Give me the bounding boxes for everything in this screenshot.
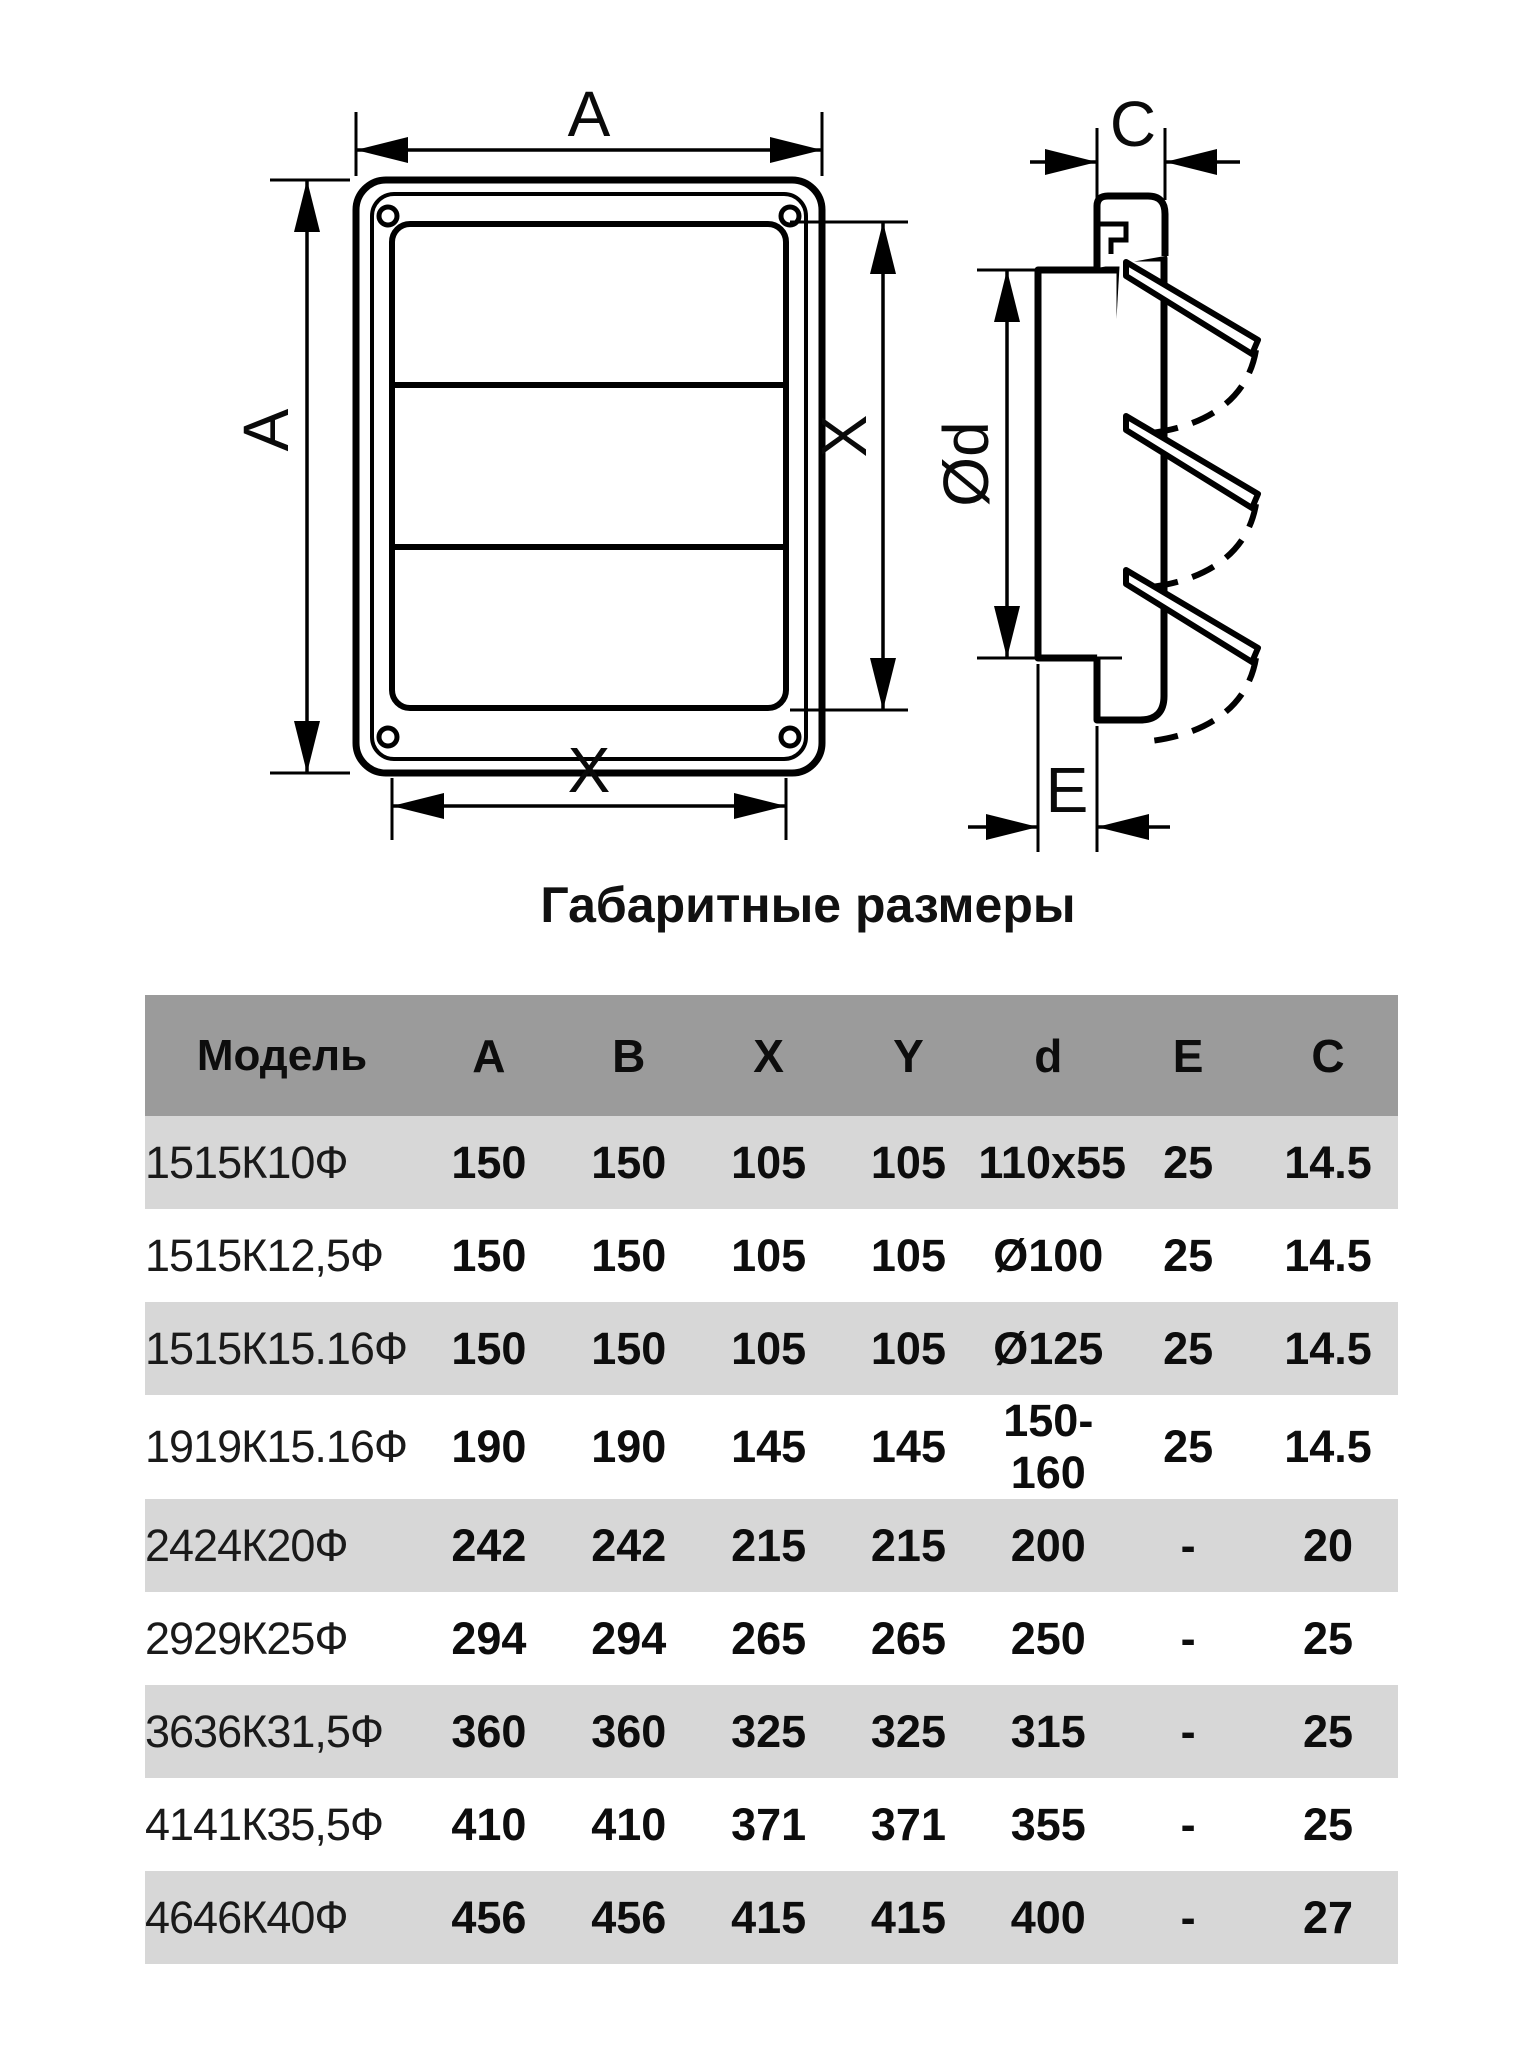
value-cell: 14.5 (1258, 1395, 1398, 1499)
table-row: 2929К25Ф294294265265250-25 (145, 1592, 1398, 1685)
value-cell: 294 (559, 1592, 699, 1685)
column-header: E (1118, 995, 1258, 1116)
value-cell: 145 (839, 1395, 979, 1499)
front-view-drawing: A A X (230, 78, 908, 840)
value-cell: 456 (419, 1871, 559, 1964)
table-row: 1919К15.16Ф190190145145150-1602514.5 (145, 1395, 1398, 1499)
value-cell: 325 (699, 1685, 839, 1778)
page-title: Габаритные размеры (80, 876, 1536, 934)
dim-label-od: Ød (930, 421, 1002, 506)
value-cell: 415 (839, 1871, 979, 1964)
value-cell: 325 (839, 1685, 979, 1778)
screw-hole-icon (379, 728, 397, 746)
spec-table-body: 1515К10Ф150150105105110x552514.51515К12,… (145, 1116, 1398, 1964)
value-cell: 150 (419, 1209, 559, 1302)
model-cell: 2424К20Ф (145, 1499, 419, 1592)
value-cell: 410 (559, 1778, 699, 1871)
dim-label-x-right: X (808, 415, 880, 458)
dim-label-e: E (1046, 754, 1089, 826)
value-cell: 150 (419, 1116, 559, 1209)
value-cell: 105 (839, 1209, 979, 1302)
value-cell: 215 (839, 1499, 979, 1592)
value-cell: 105 (699, 1302, 839, 1395)
value-cell: 355 (978, 1778, 1118, 1871)
value-cell: 145 (699, 1395, 839, 1499)
value-cell: 20 (1258, 1499, 1398, 1592)
model-cell: 3636К31,5Ф (145, 1685, 419, 1778)
value-cell: 415 (699, 1871, 839, 1964)
value-cell: 360 (559, 1685, 699, 1778)
dim-label-x-bottom: X (568, 734, 611, 806)
value-cell: Ø125 (978, 1302, 1118, 1395)
value-cell: 150-160 (978, 1395, 1118, 1499)
flange-hook (1097, 196, 1165, 268)
screw-hole-icon (379, 207, 397, 225)
value-cell: 105 (839, 1116, 979, 1209)
dim-c: C (1030, 88, 1240, 200)
value-cell: 105 (839, 1302, 979, 1395)
column-header: Y (839, 995, 979, 1116)
column-header: C (1258, 995, 1398, 1116)
value-cell: 190 (419, 1395, 559, 1499)
value-cell: - (1118, 1592, 1258, 1685)
table-row: 1515К10Ф150150105105110x552514.5 (145, 1116, 1398, 1209)
column-header: X (699, 995, 839, 1116)
value-cell: 150 (559, 1116, 699, 1209)
value-cell: 25 (1118, 1116, 1258, 1209)
value-cell: - (1118, 1871, 1258, 1964)
value-cell: - (1118, 1685, 1258, 1778)
model-cell: 4646К40Ф (145, 1871, 419, 1964)
table-header-row: МодельABXYdEC (145, 995, 1398, 1116)
dim-a-left: A (230, 180, 350, 773)
value-cell: 371 (839, 1778, 979, 1871)
model-cell: 1515К12,5Ф (145, 1209, 419, 1302)
value-cell: 25 (1258, 1592, 1398, 1685)
value-cell: 105 (699, 1116, 839, 1209)
value-cell: 14.5 (1258, 1302, 1398, 1395)
value-cell: 315 (978, 1685, 1118, 1778)
value-cell: 250 (978, 1592, 1118, 1685)
dim-label-c: C (1110, 88, 1156, 160)
value-cell: 110x55 (978, 1116, 1118, 1209)
value-cell: 27 (1258, 1871, 1398, 1964)
value-cell: 400 (978, 1871, 1118, 1964)
model-cell: 1515К10Ф (145, 1116, 419, 1209)
value-cell: 150 (559, 1209, 699, 1302)
value-cell: 14.5 (1258, 1116, 1398, 1209)
value-cell: 25 (1118, 1395, 1258, 1499)
value-cell: 150 (419, 1302, 559, 1395)
value-cell: 360 (419, 1685, 559, 1778)
table-row: 2424К20Ф242242215215200-20 (145, 1499, 1398, 1592)
model-column-header: Модель (145, 995, 419, 1116)
value-cell: Ø100 (978, 1209, 1118, 1302)
screw-hole-icon (781, 728, 799, 746)
dim-a-top: A (356, 78, 822, 176)
side-view-drawing: C Ød E (930, 88, 1258, 852)
value-cell: 25 (1118, 1302, 1258, 1395)
table-row: 4141К35,5Ф410410371371355-25 (145, 1778, 1398, 1871)
table-row: 4646К40Ф456456415415400-27 (145, 1871, 1398, 1964)
column-header: A (419, 995, 559, 1116)
value-cell: 150 (559, 1302, 699, 1395)
value-cell: - (1118, 1778, 1258, 1871)
column-header: B (559, 995, 699, 1116)
value-cell: - (1118, 1499, 1258, 1592)
table-row: 3636К31,5Ф360360325325315-25 (145, 1685, 1398, 1778)
value-cell: 410 (419, 1778, 559, 1871)
model-cell: 4141К35,5Ф (145, 1778, 419, 1871)
value-cell: 25 (1118, 1209, 1258, 1302)
value-cell: 242 (559, 1499, 699, 1592)
dim-label-a-left: A (230, 408, 302, 451)
value-cell: 294 (419, 1592, 559, 1685)
model-cell: 1919К15.16Ф (145, 1395, 419, 1499)
value-cell: 190 (559, 1395, 699, 1499)
dimensions-table: МодельABXYdEC 1515К10Ф150150105105110x55… (145, 995, 1398, 1964)
value-cell: 265 (839, 1592, 979, 1685)
value-cell: 371 (699, 1778, 839, 1871)
model-cell: 1515К15.16Ф (145, 1302, 419, 1395)
value-cell: 242 (419, 1499, 559, 1592)
spec-sheet-page: A A X (0, 0, 1536, 2048)
table-row: 1515К12,5Ф150150105105Ø1002514.5 (145, 1209, 1398, 1302)
column-header: d (978, 995, 1118, 1116)
louver-panel (392, 224, 786, 708)
value-cell: 14.5 (1258, 1209, 1398, 1302)
model-cell: 2929К25Ф (145, 1592, 419, 1685)
dimensions-diagram: A A X (0, 0, 1536, 960)
dim-label-a-top: A (568, 78, 611, 150)
value-cell: 105 (699, 1209, 839, 1302)
value-cell: 456 (559, 1871, 699, 1964)
value-cell: 215 (699, 1499, 839, 1592)
table-row: 1515К15.16Ф150150105105Ø1252514.5 (145, 1302, 1398, 1395)
value-cell: 25 (1258, 1685, 1398, 1778)
value-cell: 200 (978, 1499, 1118, 1592)
value-cell: 25 (1258, 1778, 1398, 1871)
value-cell: 265 (699, 1592, 839, 1685)
